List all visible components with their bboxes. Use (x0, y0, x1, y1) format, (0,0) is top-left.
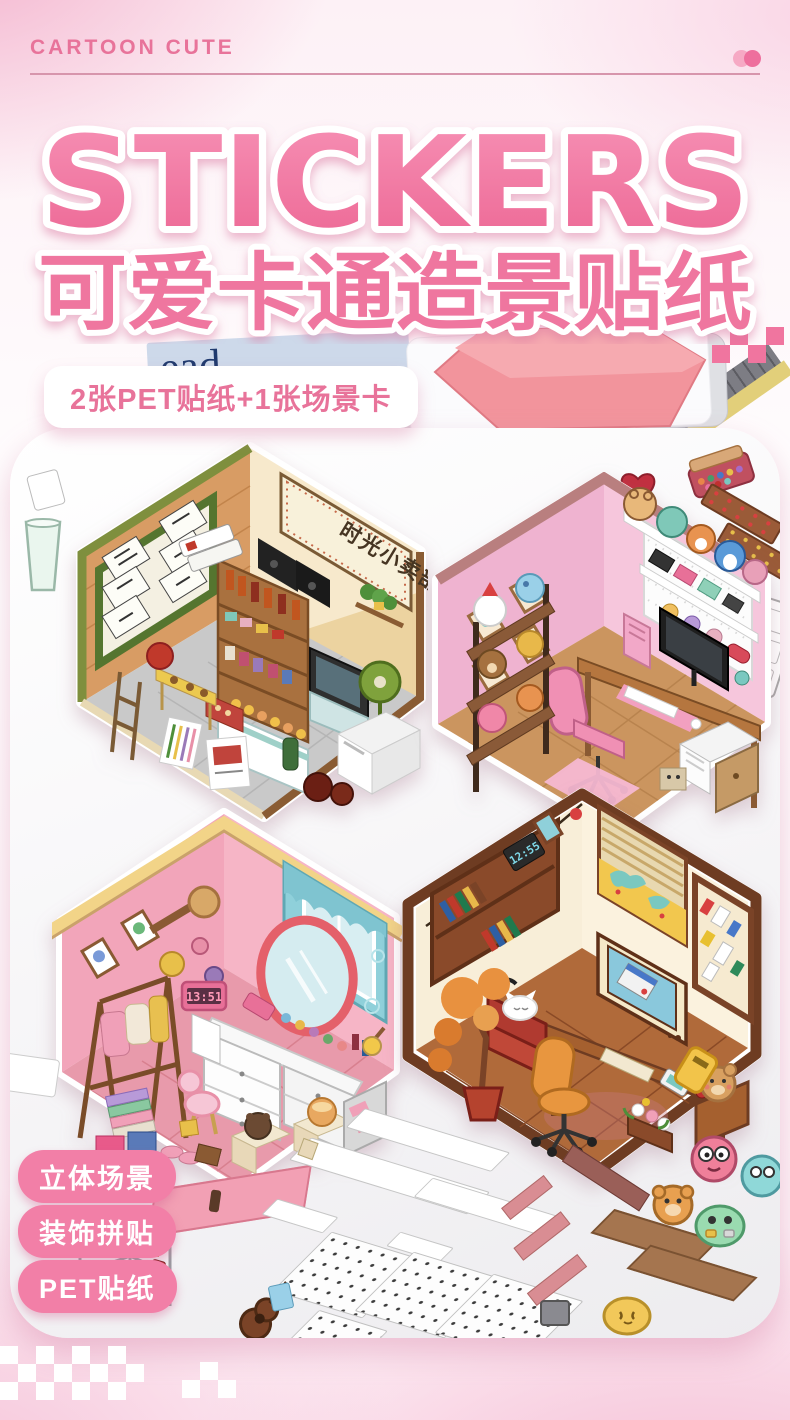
scene-retro-corner-shop: 时光小卖部 (68, 442, 428, 822)
header-divider (30, 73, 760, 75)
brand-dots-icon (733, 50, 773, 70)
poster-page: CARTOON CUTE ead STICKERS 可爱卡通造景贴纸 2张PET… (0, 0, 790, 1420)
white-tag-sticker (10, 1052, 60, 1098)
pink-monster-sticker (688, 1132, 740, 1184)
scene-pink-gamer-room (428, 472, 773, 837)
feature-pill-decoration: 装饰拼贴 (18, 1205, 176, 1258)
content-badge: 2张PET贴纸+1张场景卡 (44, 366, 418, 428)
scene-pink-vanity-room: 13:51 (52, 806, 402, 1191)
feature-pill-pet-sticker: PET贴纸 (18, 1260, 177, 1313)
checker-decoration-bottom-left (0, 1346, 144, 1400)
brand-text: CARTOON CUTE (30, 36, 235, 60)
mint-creature-sticker (692, 1198, 748, 1250)
bear-face-sticker (648, 1178, 698, 1228)
hero-subtitle: 可爱卡通造景贴纸 (20, 236, 770, 344)
hero-title-text: STICKERS (40, 109, 750, 254)
thermos (283, 738, 298, 770)
hero-subtitle-text: 可爱卡通造景贴纸 (38, 244, 752, 342)
teal-monster-sticker (736, 1152, 780, 1200)
glass-jar-2 (331, 783, 353, 805)
hero-title: STICKERS (20, 104, 770, 254)
paper-scrap-sticker (26, 468, 66, 511)
glass-cup-sticker (20, 516, 66, 596)
checker-decoration-bottom-left-2 (182, 1362, 236, 1398)
camera-sticker (540, 1300, 570, 1326)
yellow-box-sticker (179, 1119, 199, 1137)
candy-jar (147, 643, 173, 669)
vanity-clock-time: 13:51 (186, 990, 222, 1004)
chick-sticker (600, 1292, 654, 1338)
scene-cozy-study-room: 12:55 (396, 786, 766, 1181)
glass-jar (304, 773, 332, 801)
feature-pill-3d-scene: 立体场景 (18, 1150, 176, 1203)
